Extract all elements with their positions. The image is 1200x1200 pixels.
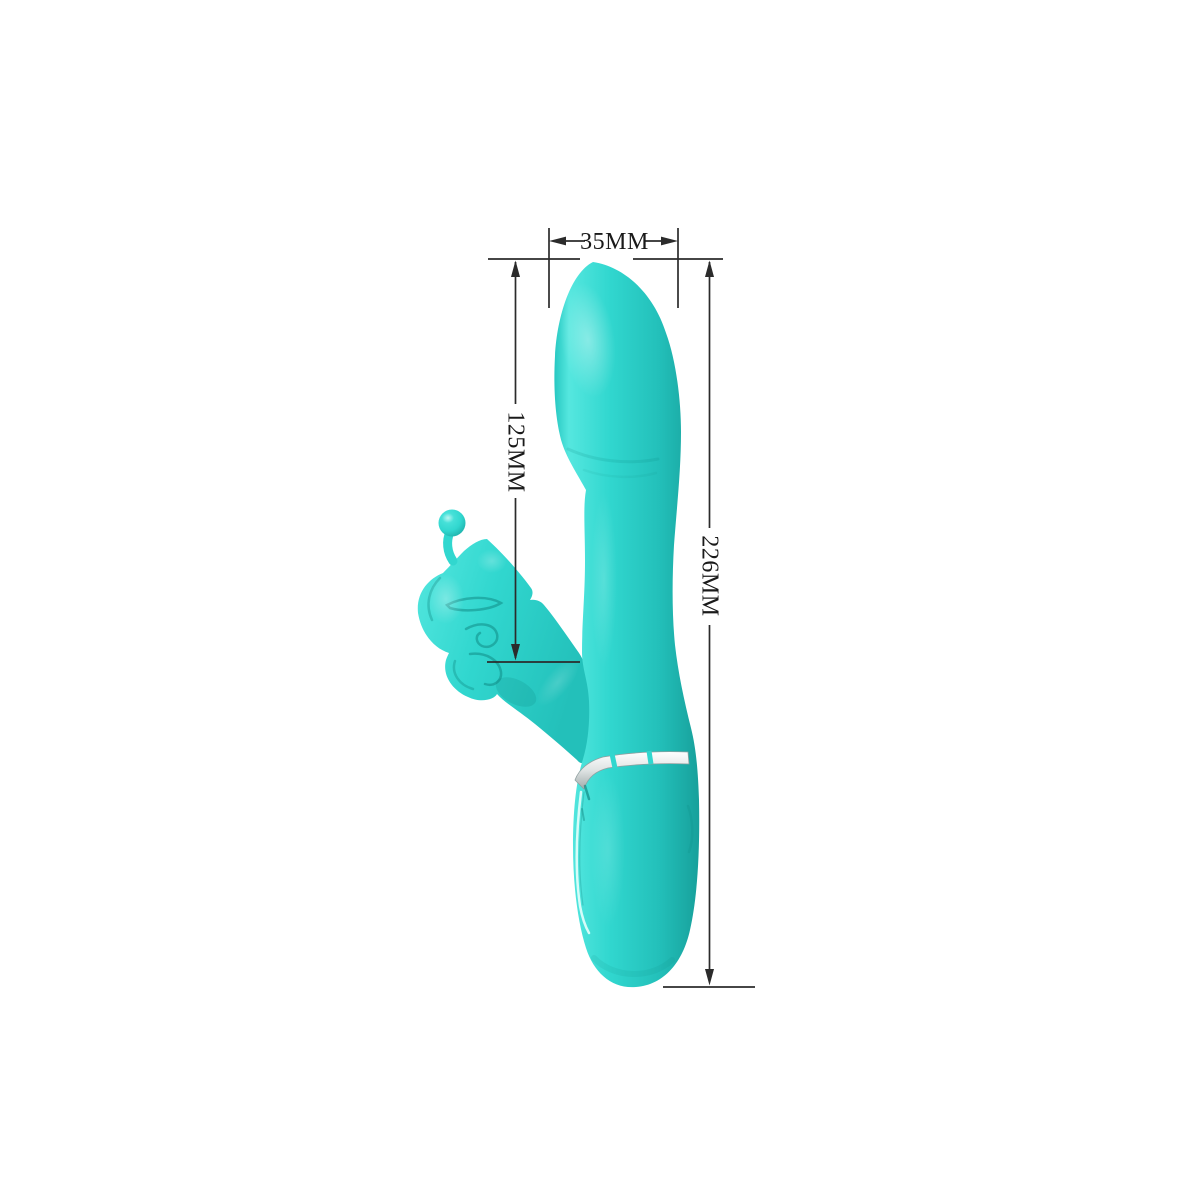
- shaft-highlight: [591, 492, 617, 668]
- handle-highlight: [591, 772, 625, 928]
- figure-canvas: 35MM 125MM 226MM: [0, 0, 1200, 1200]
- width-arrowhead-right: [661, 237, 678, 246]
- butterfly-attachment: [418, 539, 592, 763]
- total-length-arrowhead-down: [705, 969, 714, 986]
- antenna-ball-highlight: [442, 513, 454, 523]
- band-separator-1: [612, 754, 615, 768]
- width-dimension-label: 35MM: [580, 229, 649, 255]
- total-length-arrowhead-up: [705, 261, 714, 278]
- flap-highlight: [477, 549, 507, 573]
- product-dimension-figure: 35MM 125MM 226MM: [0, 0, 1200, 1200]
- inner-length-arrowhead-up: [511, 261, 520, 278]
- band-separator-2: [649, 751, 651, 764]
- antenna-ball: [439, 510, 466, 537]
- width-arrowhead-left: [549, 237, 566, 246]
- wing-highlight: [428, 574, 464, 624]
- product-illustration: [418, 262, 699, 987]
- total-length-dimension-label: 226MM: [697, 535, 723, 616]
- inner-length-dimension-label: 125MM: [503, 411, 529, 492]
